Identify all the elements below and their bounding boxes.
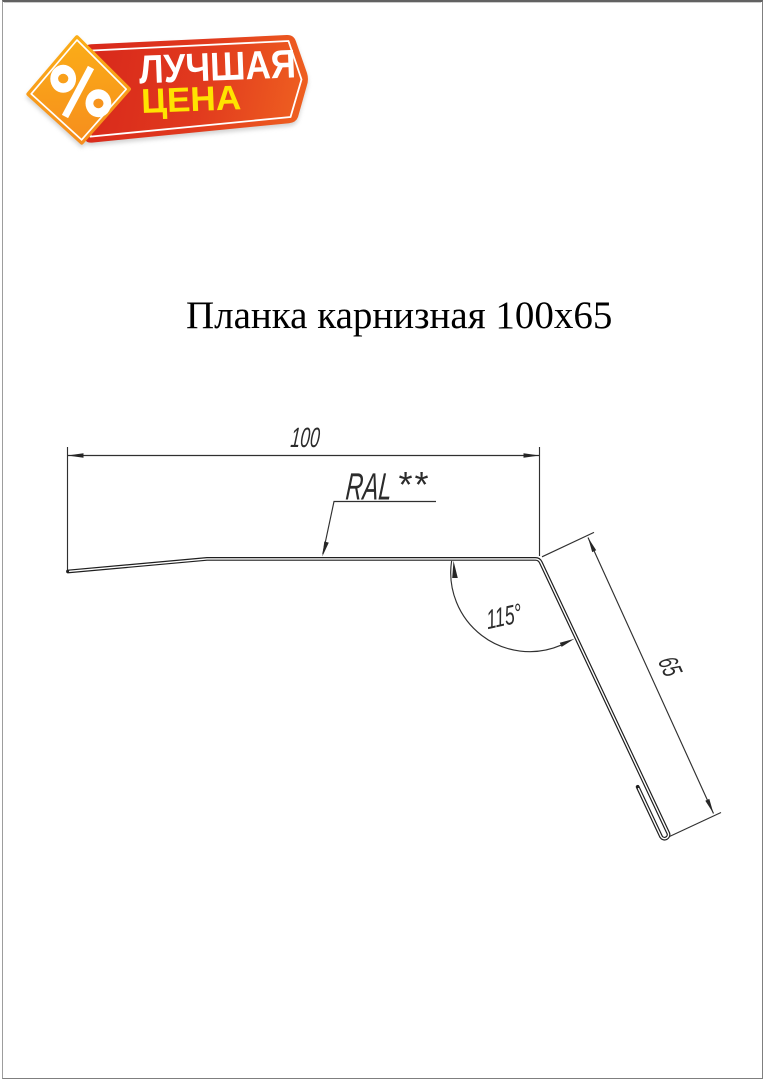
- svg-text:100: 100: [290, 422, 322, 453]
- svg-text:115°: 115°: [485, 597, 523, 635]
- svg-text:**: **: [397, 464, 429, 505]
- svg-text:65: 65: [652, 653, 688, 680]
- svg-text:RAL: RAL: [344, 465, 394, 508]
